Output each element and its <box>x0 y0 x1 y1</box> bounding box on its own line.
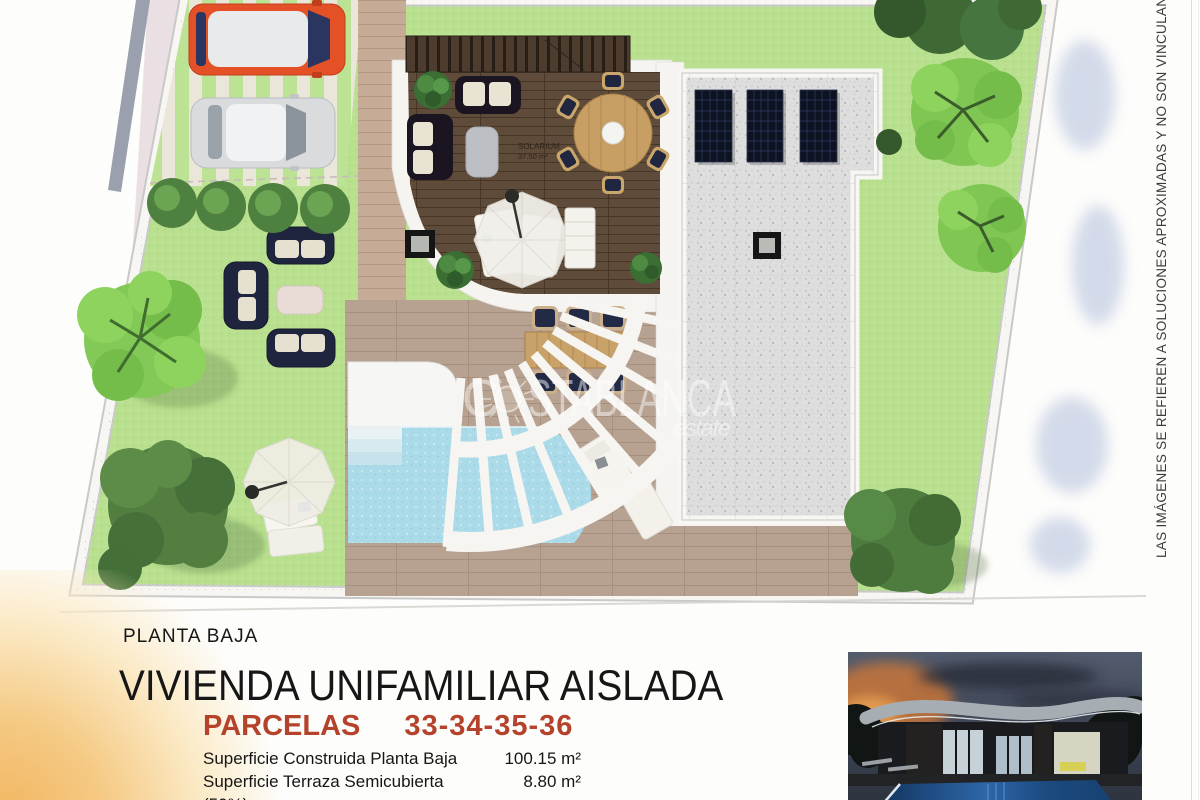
sofa-cushions <box>1060 762 1086 771</box>
legal-disclaimer: LAS IMÁGENES SE REFIEREN A SOLUCIONES AP… <box>1154 0 1169 558</box>
pergola-slats <box>406 36 630 72</box>
watermark-sub: estate <box>673 415 731 442</box>
page-edge-line <box>1198 0 1199 800</box>
site-plan: SOLARIUM 37.50 m² <box>0 0 1200 625</box>
page-title-text: VIVIENDA UNIFAMILIAR AISLADA <box>119 662 723 711</box>
solar-panel <box>695 90 735 165</box>
pool-step <box>348 427 402 439</box>
page-edge-line <box>1191 0 1192 800</box>
parcels-line: PARCELAS33-34-35-36 <box>203 710 573 743</box>
garden-table <box>277 286 323 314</box>
villa-night-photo <box>848 652 1142 800</box>
car-orange <box>189 0 345 78</box>
surface-value: 100.15 m² <box>481 747 581 770</box>
car-silver <box>191 94 335 171</box>
surface-table: Superficie Construida Planta Baja 100.15… <box>203 747 581 793</box>
rear-window <box>208 105 222 159</box>
surface-row: Superficie Terraza Semicubierta (50%) 8.… <box>203 770 581 793</box>
solar-panel <box>800 90 840 165</box>
tanning-platform <box>348 362 458 427</box>
villa-windows <box>943 730 1100 774</box>
rear-window <box>196 12 206 66</box>
solarium-sofa-left <box>407 114 453 180</box>
pool-step <box>348 452 402 465</box>
pool-step <box>348 439 402 452</box>
bush <box>876 129 902 155</box>
solarium-area: 37.50 m² <box>518 152 548 161</box>
floor-label: PLANTA BAJA <box>123 626 258 648</box>
pine-tree <box>911 58 1022 167</box>
surface-row: Superficie Construida Planta Baja 100.15… <box>203 747 581 770</box>
cloud <box>918 663 1098 689</box>
surface-label: Superficie Construida Planta Baja <box>203 747 481 770</box>
brochure-page: SOLARIUM 37.50 m² <box>0 0 1200 800</box>
solarium-sofa-top <box>455 76 521 114</box>
roof-skylight <box>753 232 781 259</box>
lounger-stack <box>565 208 595 268</box>
solar-panel <box>747 90 786 165</box>
windshield <box>286 104 306 161</box>
windshield <box>308 10 330 68</box>
skylight <box>405 230 435 258</box>
page-title: VIVIENDA UNIFAMILIAR AISLADA <box>119 662 791 711</box>
parasol-base <box>245 485 259 499</box>
watermark-c: C <box>462 370 500 428</box>
parcels-numbers: 33-34-35-36 <box>404 710 573 742</box>
coffee-table <box>466 127 498 177</box>
parcels-label: PARCELAS <box>203 710 360 742</box>
surface-value: 8.80 m² <box>484 770 581 793</box>
solar-panels <box>695 90 840 165</box>
parasol-base <box>505 189 519 203</box>
solarium-label: SOLARIUM <box>518 142 560 151</box>
surface-label: Superficie Terraza Semicubierta (50%) <box>203 770 484 793</box>
